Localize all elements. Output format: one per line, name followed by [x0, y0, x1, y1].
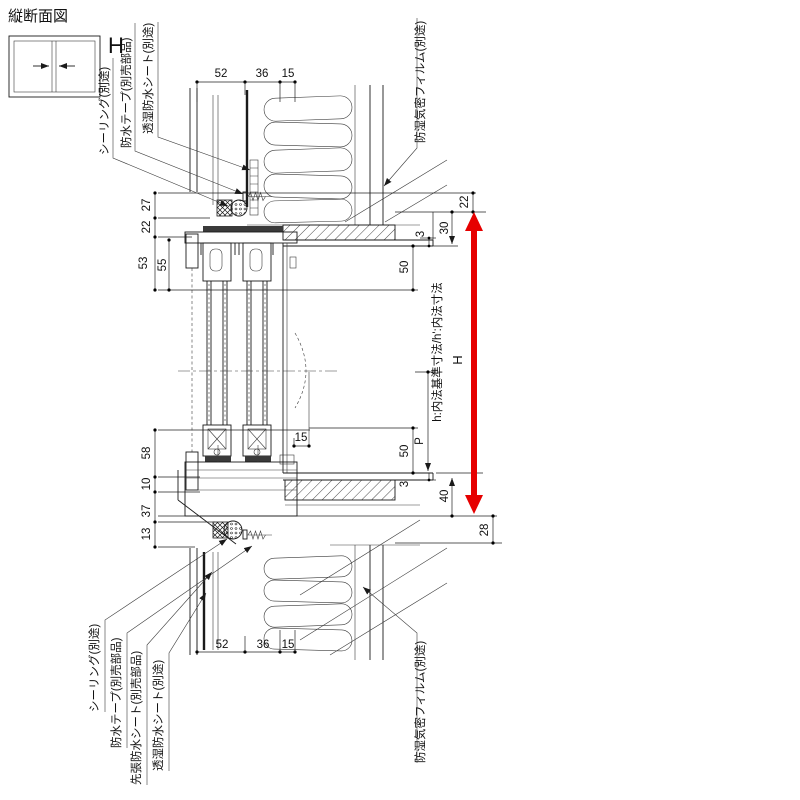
height-arrow-bottom — [465, 495, 483, 514]
sash-interior — [243, 243, 271, 462]
callout-sealing-top: シーリング(別途) — [97, 67, 111, 155]
wall-bottom — [190, 520, 447, 660]
insulation-bottom — [264, 555, 353, 651]
roller-interior — [254, 449, 260, 455]
dim-37: 37 — [141, 505, 153, 518]
dim-bottom-36: 36 — [257, 639, 270, 651]
window-type-icon — [9, 36, 100, 97]
wood-hatch-bottom — [300, 520, 447, 655]
dim-bottom-52: 52 — [216, 639, 229, 651]
height-arrow-top — [465, 212, 483, 231]
callout-moisture-sheet-top: 透湿防水シート(別途) — [141, 23, 155, 134]
dim-10: 10 — [141, 478, 153, 491]
wood-hatch-top — [345, 160, 447, 222]
sill-lumber — [285, 480, 395, 500]
callout-presheet-bottom: 先張防水シート(別売部品) — [129, 651, 143, 785]
sealing-bottom — [224, 521, 242, 539]
dim-3-bottom: 3 — [399, 481, 411, 487]
insect-screen — [186, 234, 198, 490]
callout-sealing-bottom: シーリング(別途) — [87, 624, 101, 712]
callout-tape-top: 防水テープ(別売部品) — [119, 37, 133, 148]
callout-vapor-film-top: 防湿気密フィルム(別途) — [413, 21, 427, 143]
dim-53: 53 — [138, 257, 150, 270]
callout-vapor-film-bottom: 防湿気密フィルム(別途) — [413, 641, 427, 763]
dim-50-top: 50 — [399, 261, 411, 274]
screw-top — [243, 192, 272, 201]
dim-27: 27 — [141, 199, 153, 212]
crescent-arc — [295, 333, 306, 408]
dim-inner-15-text: 15 — [295, 432, 308, 444]
dim-13: 13 — [141, 528, 153, 541]
height-arrow-label: H — [450, 355, 465, 364]
inner-height-note: h:内法基準寸法/h':内法寸法 — [430, 282, 444, 422]
dim-58: 58 — [141, 447, 153, 460]
callout-top-right: 防湿気密フィルム(別途) — [384, 18, 427, 186]
page-title: 縦断面図 — [8, 8, 68, 25]
sash-exterior — [203, 243, 231, 462]
dim-22-left: 22 — [141, 221, 153, 234]
dim-22-right: 22 — [459, 196, 471, 209]
dim-bottom: 52 36 15 — [195, 630, 296, 654]
sealing-top — [231, 200, 247, 216]
dim-55: 55 — [157, 259, 169, 272]
callouts-bottom-left: シーリング(別途) 防水テープ(別売部品) 先張防水シート(別売部品) 透湿防水… — [87, 539, 252, 785]
dim-50-bottom: 50 — [399, 445, 411, 458]
dim-p: P — [414, 437, 426, 445]
callout-bottom-right: 防湿気密フィルム(別途) — [363, 587, 427, 763]
dim-3-top: 3 — [415, 231, 427, 237]
height-arrow: H — [450, 212, 483, 514]
dim-30: 30 — [439, 222, 451, 235]
dim-top-36: 36 — [256, 68, 269, 80]
dim-inner-15: 15 — [292, 432, 310, 448]
dim-top-15: 15 — [282, 68, 295, 80]
frame-head — [185, 192, 297, 255]
dim-bottom-15: 15 — [282, 639, 295, 651]
insulation-top — [264, 95, 353, 223]
callout-moisture-sheet-bottom: 透湿防水シート(別途) — [151, 660, 165, 771]
roller-exterior — [214, 449, 220, 455]
stop-block-top — [290, 257, 296, 268]
dim-left-upper: 27 22 53 55 — [138, 191, 476, 291]
dim-top-52: 52 — [215, 68, 228, 80]
sheathing-board — [250, 160, 258, 215]
sash-section — [178, 234, 340, 490]
head-packing-band — [203, 226, 283, 232]
screw-bottom — [243, 530, 272, 539]
callout-tape-bottom: 防水テープ(別売部品) — [109, 637, 123, 748]
lintel — [283, 225, 433, 246]
dim-28: 28 — [479, 524, 491, 537]
vertical-section-page: 縦断面図 H — [0, 0, 800, 800]
section-drawing: 縦断面図 H — [0, 0, 800, 800]
dim-40: 40 — [439, 490, 451, 503]
